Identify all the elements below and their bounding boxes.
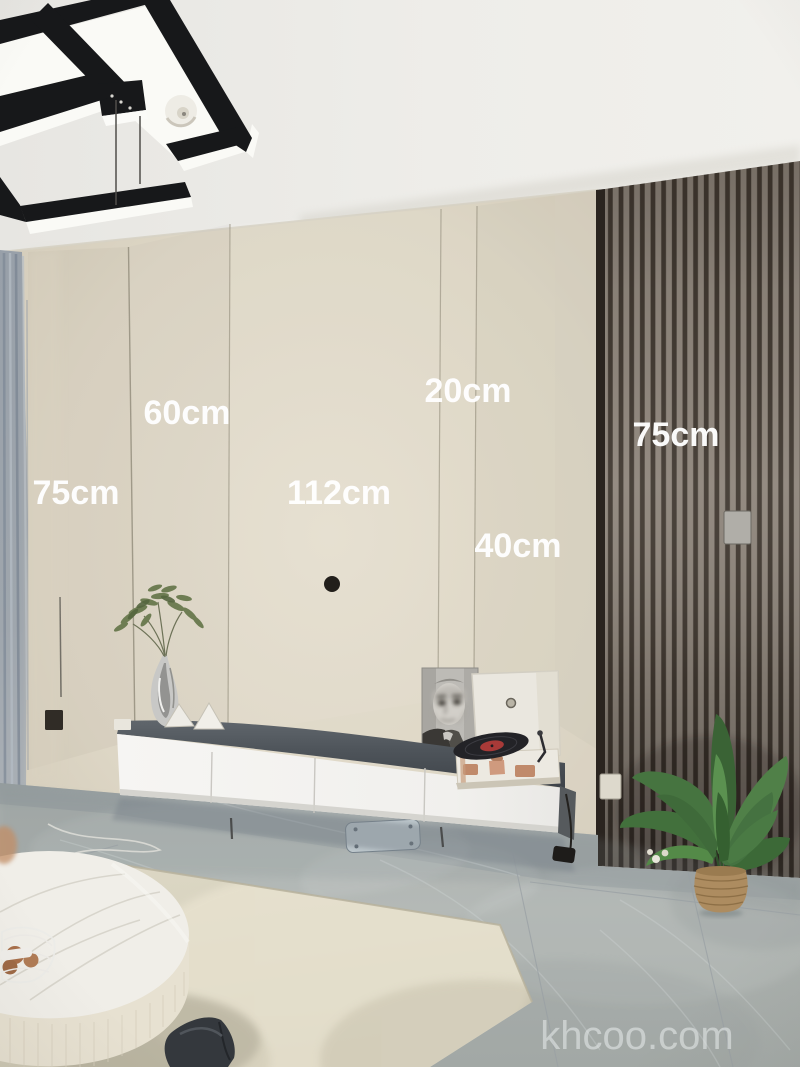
svg-text:112cm: 112cm — [287, 474, 391, 512]
svg-text:75cm: 75cm — [33, 474, 120, 512]
svg-text:40cm: 40cm — [475, 527, 562, 565]
svg-text:75cm: 75cm — [633, 416, 720, 454]
svg-text:60cm: 60cm — [144, 394, 231, 432]
svg-text:20cm: 20cm — [425, 372, 512, 410]
svg-text:khcoo.com: khcoo.com — [540, 1014, 733, 1058]
